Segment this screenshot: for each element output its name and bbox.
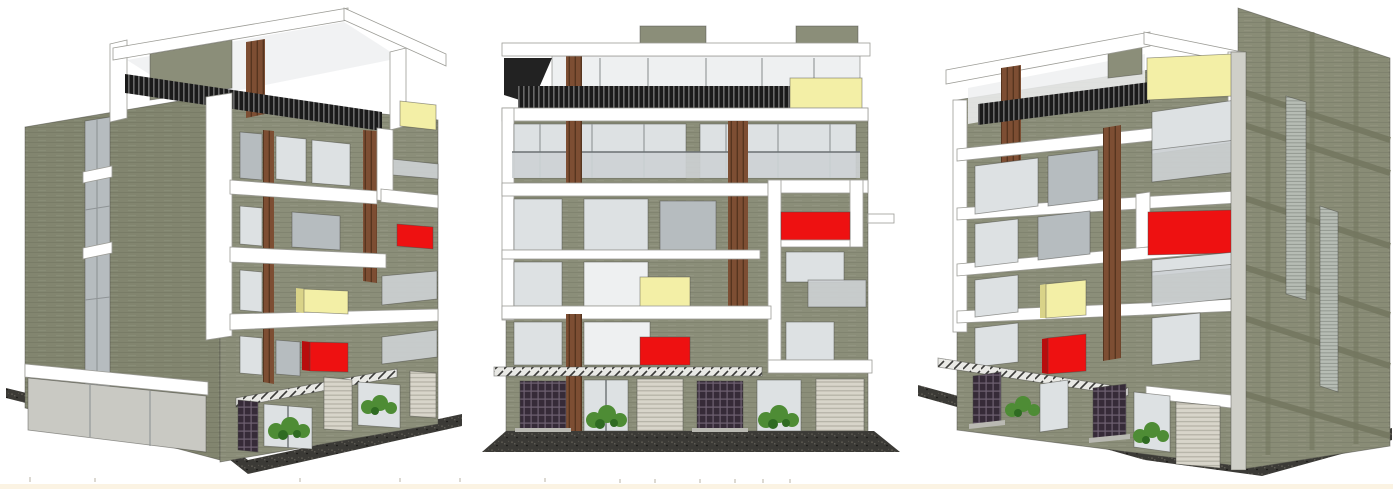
window bbox=[514, 322, 562, 365]
ribbon-band bbox=[502, 250, 760, 259]
ribbon-vertical bbox=[502, 108, 514, 320]
accent-box-yellow bbox=[1046, 280, 1086, 318]
ribbon-band bbox=[768, 360, 872, 373]
shop-door-lattice bbox=[973, 372, 1001, 425]
balcony-rail bbox=[512, 152, 860, 178]
accent-box-yellow-side bbox=[296, 288, 304, 313]
side-vent-strip bbox=[1286, 96, 1306, 300]
ribbon-band bbox=[502, 108, 868, 121]
accent-panel-red-edge bbox=[397, 224, 433, 249]
window bbox=[584, 199, 648, 250]
roller-shutter bbox=[1176, 402, 1220, 468]
architectural-render-canvas bbox=[0, 0, 1393, 489]
view-right-perspective bbox=[918, 8, 1392, 476]
terrace-yellow-parapet bbox=[1147, 54, 1232, 100]
window bbox=[1152, 313, 1200, 365]
door-step bbox=[692, 428, 748, 432]
window bbox=[240, 132, 262, 180]
roller-shutter bbox=[410, 371, 436, 418]
shop-door-lattice bbox=[238, 400, 258, 452]
window bbox=[786, 252, 844, 282]
window bbox=[1038, 211, 1090, 260]
accent-box-yellow-side bbox=[1040, 284, 1046, 318]
roof-slab bbox=[502, 43, 870, 56]
accent-panel-yellow bbox=[640, 277, 690, 307]
terrace-yellow-parapet bbox=[790, 78, 862, 108]
ribbon-band bbox=[502, 183, 774, 196]
scan-tick-marks bbox=[30, 477, 790, 483]
balcony-rail bbox=[808, 280, 866, 307]
window bbox=[514, 262, 562, 306]
window bbox=[975, 158, 1038, 214]
accent-box-red bbox=[1048, 334, 1086, 374]
window bbox=[276, 340, 300, 376]
accent-box-yellow bbox=[304, 289, 348, 314]
neighbor-slab-stub bbox=[868, 214, 894, 223]
accent-panel-red bbox=[781, 212, 850, 240]
pavement bbox=[482, 431, 900, 452]
accent-panel-red bbox=[1148, 210, 1233, 255]
ribbon-vertical bbox=[850, 180, 863, 247]
accent-panel-red bbox=[640, 337, 690, 365]
timber-slat-strip bbox=[1103, 125, 1121, 361]
base-strip bbox=[0, 484, 1393, 489]
accent-box-red bbox=[310, 342, 348, 372]
shopfront-glass bbox=[1040, 380, 1068, 432]
window bbox=[975, 275, 1018, 317]
window bbox=[1048, 150, 1098, 206]
roller-shutter bbox=[324, 377, 352, 431]
shop-door-lattice bbox=[520, 381, 566, 431]
window bbox=[584, 262, 648, 306]
side-vent-strip bbox=[1320, 206, 1338, 392]
window bbox=[240, 206, 262, 246]
ribbon-band bbox=[502, 306, 771, 319]
window bbox=[514, 199, 562, 250]
window bbox=[786, 322, 834, 360]
accent-box-red-side bbox=[1042, 338, 1048, 374]
window bbox=[240, 270, 262, 312]
three-view-building-render bbox=[0, 0, 1393, 489]
accent-box-red-side bbox=[302, 341, 310, 371]
door-step bbox=[515, 428, 571, 432]
terrace-yellow-parapet bbox=[400, 101, 436, 130]
shop-door-lattice bbox=[697, 381, 743, 431]
roller-shutter bbox=[637, 379, 683, 431]
view-front-elevation bbox=[482, 26, 900, 452]
window bbox=[660, 201, 716, 250]
ribbon-vertical bbox=[206, 93, 232, 340]
view-left-perspective bbox=[6, 8, 462, 474]
terrace-timber-column bbox=[566, 121, 582, 183]
balcony-rail bbox=[382, 271, 437, 305]
corner-column bbox=[1231, 52, 1246, 470]
window bbox=[276, 136, 306, 182]
window bbox=[240, 336, 262, 375]
window bbox=[312, 140, 350, 186]
window bbox=[975, 219, 1018, 267]
shop-canopy bbox=[494, 367, 762, 376]
ribbon-band bbox=[781, 240, 850, 247]
ribbon-vertical bbox=[768, 180, 781, 365]
roller-shutter bbox=[816, 379, 864, 431]
window bbox=[975, 323, 1018, 367]
window bbox=[292, 212, 340, 250]
timber-slat-strip bbox=[728, 121, 748, 319]
shop-door-lattice bbox=[1093, 384, 1126, 439]
